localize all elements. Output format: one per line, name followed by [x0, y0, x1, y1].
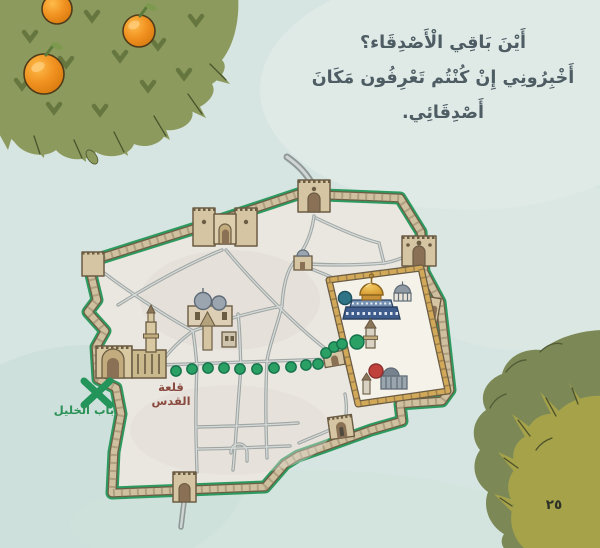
- small-building-icon: [222, 332, 236, 347]
- friend-marker-green: [350, 335, 364, 349]
- dung-gate-icon: [328, 414, 355, 439]
- herods-gate-icon: [402, 236, 436, 266]
- zion-gate-icon: [173, 472, 196, 502]
- page-number: ٢٥: [540, 497, 568, 513]
- map-label-bab-alkhalil: باب الخليل: [52, 403, 116, 417]
- new-gate-icon: [193, 208, 257, 246]
- question-line-1: أَيْنَ بَاقِي الْأَصْدِقَاء؟: [300, 26, 586, 61]
- friend-marker-teal: [338, 291, 351, 304]
- map-label-citadel: قلعة القدس: [140, 380, 202, 408]
- storybook-page: أَيْنَ بَاقِي الْأَصْدِقَاء؟ أَخْبِرُونِ…: [0, 0, 600, 548]
- question-text: أَيْنَ بَاقِي الْأَصْدِقَاء؟ أَخْبِرُونِ…: [300, 26, 586, 131]
- friend-marker-red: [369, 364, 383, 378]
- corner-tower-icon: [82, 252, 104, 276]
- damascus-gate-icon: [298, 180, 330, 212]
- question-line-3: أَصْدِقَائِي.: [300, 96, 586, 131]
- question-line-2: أَخْبِرُونِي إِنْ كُنْتُم تَعْرِفُون مَك…: [300, 61, 586, 96]
